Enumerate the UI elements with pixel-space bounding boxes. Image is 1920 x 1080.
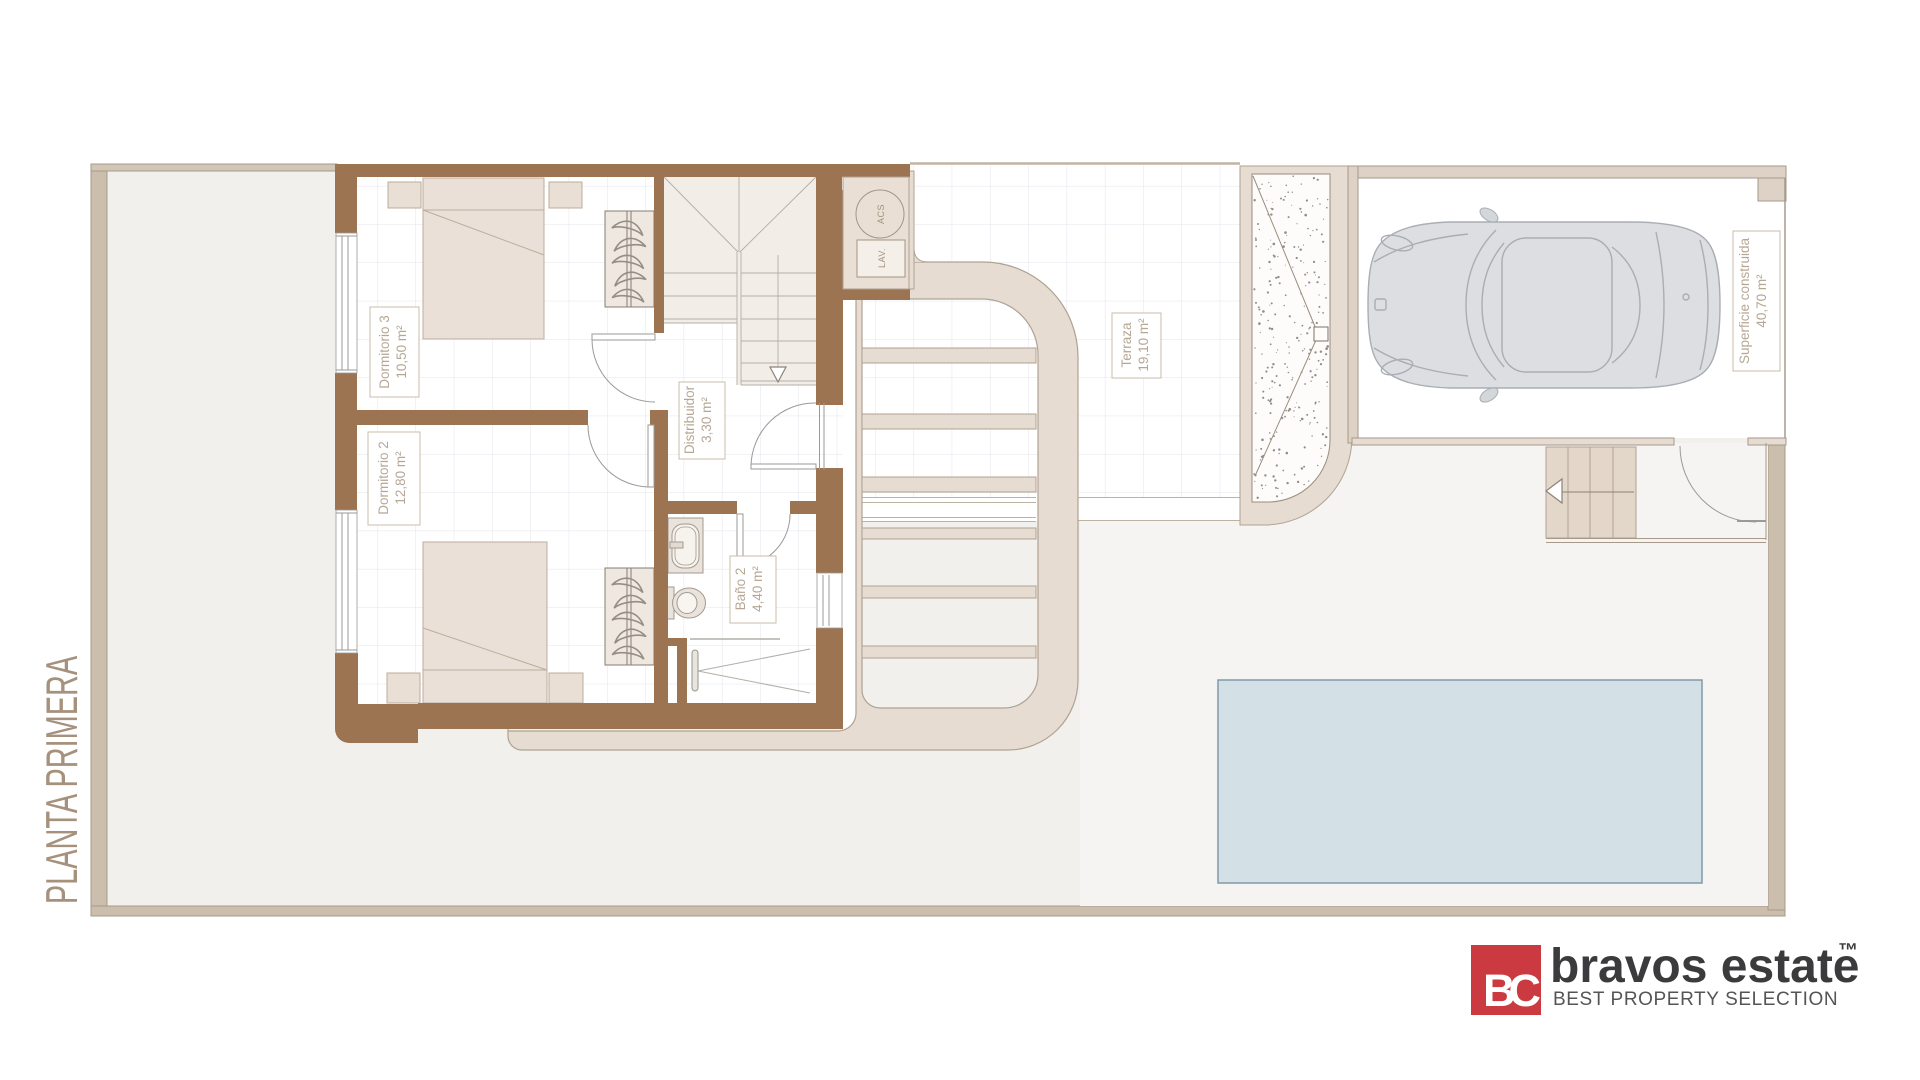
svg-text:bravos estate: bravos estate [1550, 940, 1860, 993]
svg-text:PLANTA PRIMERA: PLANTA PRIMERA [37, 656, 87, 904]
svg-text:BEST PROPERTY SELECTION: BEST PROPERTY SELECTION [1553, 989, 1838, 1010]
svg-text:40,70 m²: 40,70 m² [1754, 274, 1769, 328]
svg-text:Baño 2: Baño 2 [733, 568, 748, 611]
svg-text:ACS: ACS [876, 204, 886, 224]
svg-text:BC: BC [1483, 965, 1540, 1016]
svg-text:4,40 m²: 4,40 m² [750, 566, 765, 612]
svg-text:LAV.: LAV. [877, 248, 887, 268]
svg-text:Distribuidor: Distribuidor [682, 385, 697, 454]
svg-text:Terraza: Terraza [1119, 322, 1134, 368]
svg-text:Dormitorio 3: Dormitorio 3 [377, 315, 392, 389]
svg-text:™: ™ [1838, 940, 1858, 962]
svg-text:12,80 m²: 12,80 m² [393, 451, 408, 505]
svg-text:Dormitorio 2: Dormitorio 2 [376, 441, 391, 515]
svg-text:10,50 m²: 10,50 m² [394, 325, 409, 379]
svg-text:Superficie construida: Superficie construida [1737, 237, 1752, 364]
svg-text:3,30 m²: 3,30 m² [699, 397, 714, 443]
svg-text:19,10 m²: 19,10 m² [1136, 318, 1151, 372]
